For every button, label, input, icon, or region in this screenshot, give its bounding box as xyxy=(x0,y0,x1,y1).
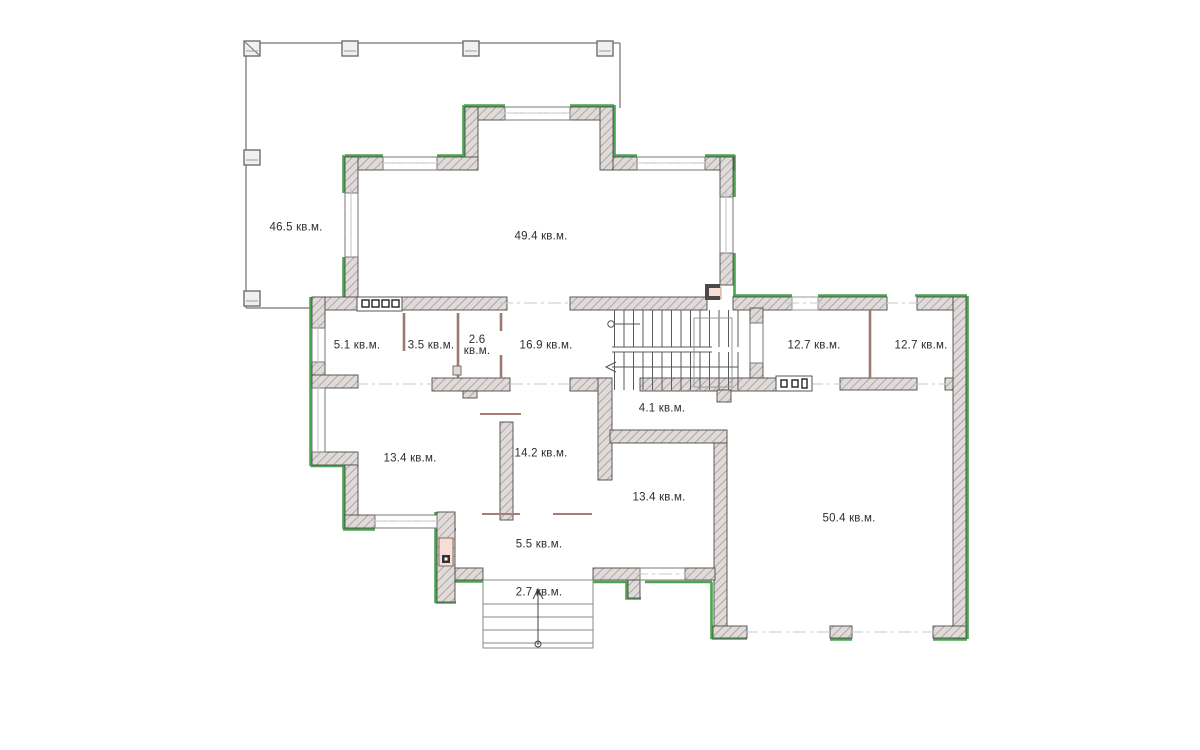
room-area-label: 5.1 кв.м. xyxy=(334,341,380,352)
walls-layer xyxy=(312,107,966,638)
boiler-unit xyxy=(439,538,453,566)
room-area-label: 2.7 кв.м. xyxy=(516,588,562,599)
room-area-label: 13.4 кв.м. xyxy=(632,493,685,504)
room-area-label: 13.4 кв.м. xyxy=(383,454,436,465)
room-area-label: 4.1 кв.м. xyxy=(639,404,685,415)
room-area-label: 3.5 кв.м. xyxy=(408,341,454,352)
terrace-outline xyxy=(246,43,620,308)
stair-door-frame xyxy=(705,284,721,300)
partition-endcap xyxy=(453,366,461,375)
room-area-label: 5.5 кв.м. xyxy=(516,540,562,551)
floor-plan-svg xyxy=(0,0,1200,750)
room-area-label: 46.5 кв.м. xyxy=(269,223,322,234)
room-area-label: 16.9 кв.м. xyxy=(519,341,572,352)
door-leaves xyxy=(480,414,592,514)
room-area-label: 50.4 кв.м. xyxy=(822,514,875,525)
floor-plan-page: 46.5 кв.м. 49.4 кв.м. 5.1 кв.м. 3.5 кв.м… xyxy=(0,0,1200,750)
terrace-columns xyxy=(244,41,613,306)
room-area-label: 2.6 кв.м. xyxy=(459,335,495,357)
room-area-label: 14.2 кв.м. xyxy=(514,449,567,460)
room-area-label: 12.7 кв.м. xyxy=(894,341,947,352)
room-area-label: 49.4 кв.м. xyxy=(514,232,567,243)
room-area-label: 12.7 кв.м. xyxy=(787,341,840,352)
